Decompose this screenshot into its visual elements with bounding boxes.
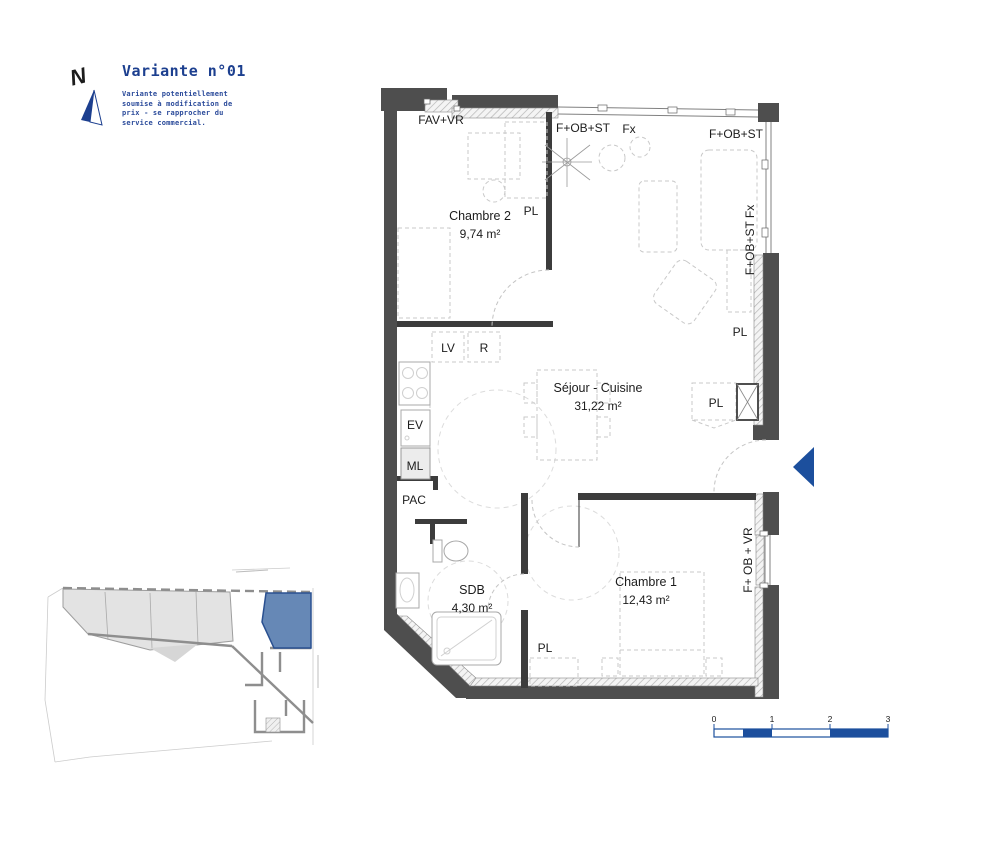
floor-plan: Chambre 2 9,74 m² Séjour - Cuisine 31,22… bbox=[378, 80, 826, 720]
label-pl-wall: PL bbox=[733, 325, 748, 339]
disclaimer-line: prix - se rapprocher du bbox=[122, 109, 232, 119]
scale-tick-3: 3 bbox=[886, 714, 891, 724]
scale-bar: 0 1 2 3 bbox=[700, 712, 900, 746]
window-label-fob-vr-right: F+ OB + VR bbox=[741, 527, 755, 593]
scale-bar-segment bbox=[743, 729, 772, 737]
window-label-fobst-top-right: F+OB+ST bbox=[709, 127, 764, 141]
disclaimer-line: service commercial. bbox=[122, 119, 232, 129]
label-lv: LV bbox=[441, 341, 455, 355]
equipment-labels: LV R EV ML PAC PL PL PL PL bbox=[402, 204, 748, 655]
page: N Variante n°01 Variante potentiellement… bbox=[0, 0, 1000, 857]
keyplan-upper-rooms bbox=[63, 589, 233, 650]
room-area-sejour: 31,22 m² bbox=[574, 399, 621, 413]
entrance-arrow-icon bbox=[793, 447, 814, 487]
label-pl-hall: PL bbox=[538, 641, 553, 655]
key-plan bbox=[30, 550, 330, 765]
window-label-fobst-top: F+OB+ST bbox=[556, 121, 611, 135]
window-label-fav-vr: FAV+VR bbox=[418, 113, 464, 127]
room-label-chambre1: Chambre 1 bbox=[615, 575, 677, 589]
keyplan-stair-hatch bbox=[266, 718, 280, 732]
keyplan-highlighted-unit bbox=[262, 593, 311, 648]
window-label-fobst-fx-right: F+OB+ST Fx bbox=[743, 205, 757, 275]
scale-tick-2: 2 bbox=[828, 714, 833, 724]
scale-tick-0: 0 bbox=[712, 714, 717, 724]
label-ev: EV bbox=[407, 418, 423, 432]
disclaimer-line: Variante potentiellement bbox=[122, 90, 232, 100]
label-pac: PAC bbox=[402, 493, 426, 507]
window-handles bbox=[424, 99, 768, 588]
room-labels: Chambre 2 9,74 m² Séjour - Cuisine 31,22… bbox=[449, 209, 677, 615]
label-r: R bbox=[480, 341, 489, 355]
label-pl-chambre2: PL bbox=[524, 204, 539, 218]
variant-title: Variante n°01 bbox=[122, 62, 246, 80]
north-arrow-icon: N bbox=[58, 52, 128, 132]
disclaimer-text: Variante potentiellement soumise à modif… bbox=[122, 90, 232, 128]
north-letter: N bbox=[67, 62, 90, 90]
opening-labels: FAV+VR F+OB+ST Fx F+OB+ST F+OB+ST Fx F+ … bbox=[418, 113, 763, 593]
room-area-chambre2: 9,74 m² bbox=[460, 227, 501, 241]
room-label-chambre2: Chambre 2 bbox=[449, 209, 511, 223]
scale-bar-segment bbox=[830, 729, 888, 737]
room-area-chambre1: 12,43 m² bbox=[622, 593, 669, 607]
label-ml: ML bbox=[407, 459, 424, 473]
window-glazing bbox=[558, 107, 771, 585]
scale-ticks: 0 1 2 3 bbox=[712, 714, 891, 724]
label-pl-sejour: PL bbox=[709, 396, 724, 410]
room-area-sdb: 4,30 m² bbox=[452, 601, 493, 615]
room-label-sdb: SDB bbox=[459, 583, 485, 597]
window-label-fx-top: Fx bbox=[622, 122, 635, 136]
scale-tick-1: 1 bbox=[770, 714, 775, 724]
scale-tick-lines bbox=[714, 724, 888, 729]
disclaimer-line: soumise à modification de bbox=[122, 100, 232, 110]
room-label-sejour: Séjour - Cuisine bbox=[554, 381, 643, 395]
